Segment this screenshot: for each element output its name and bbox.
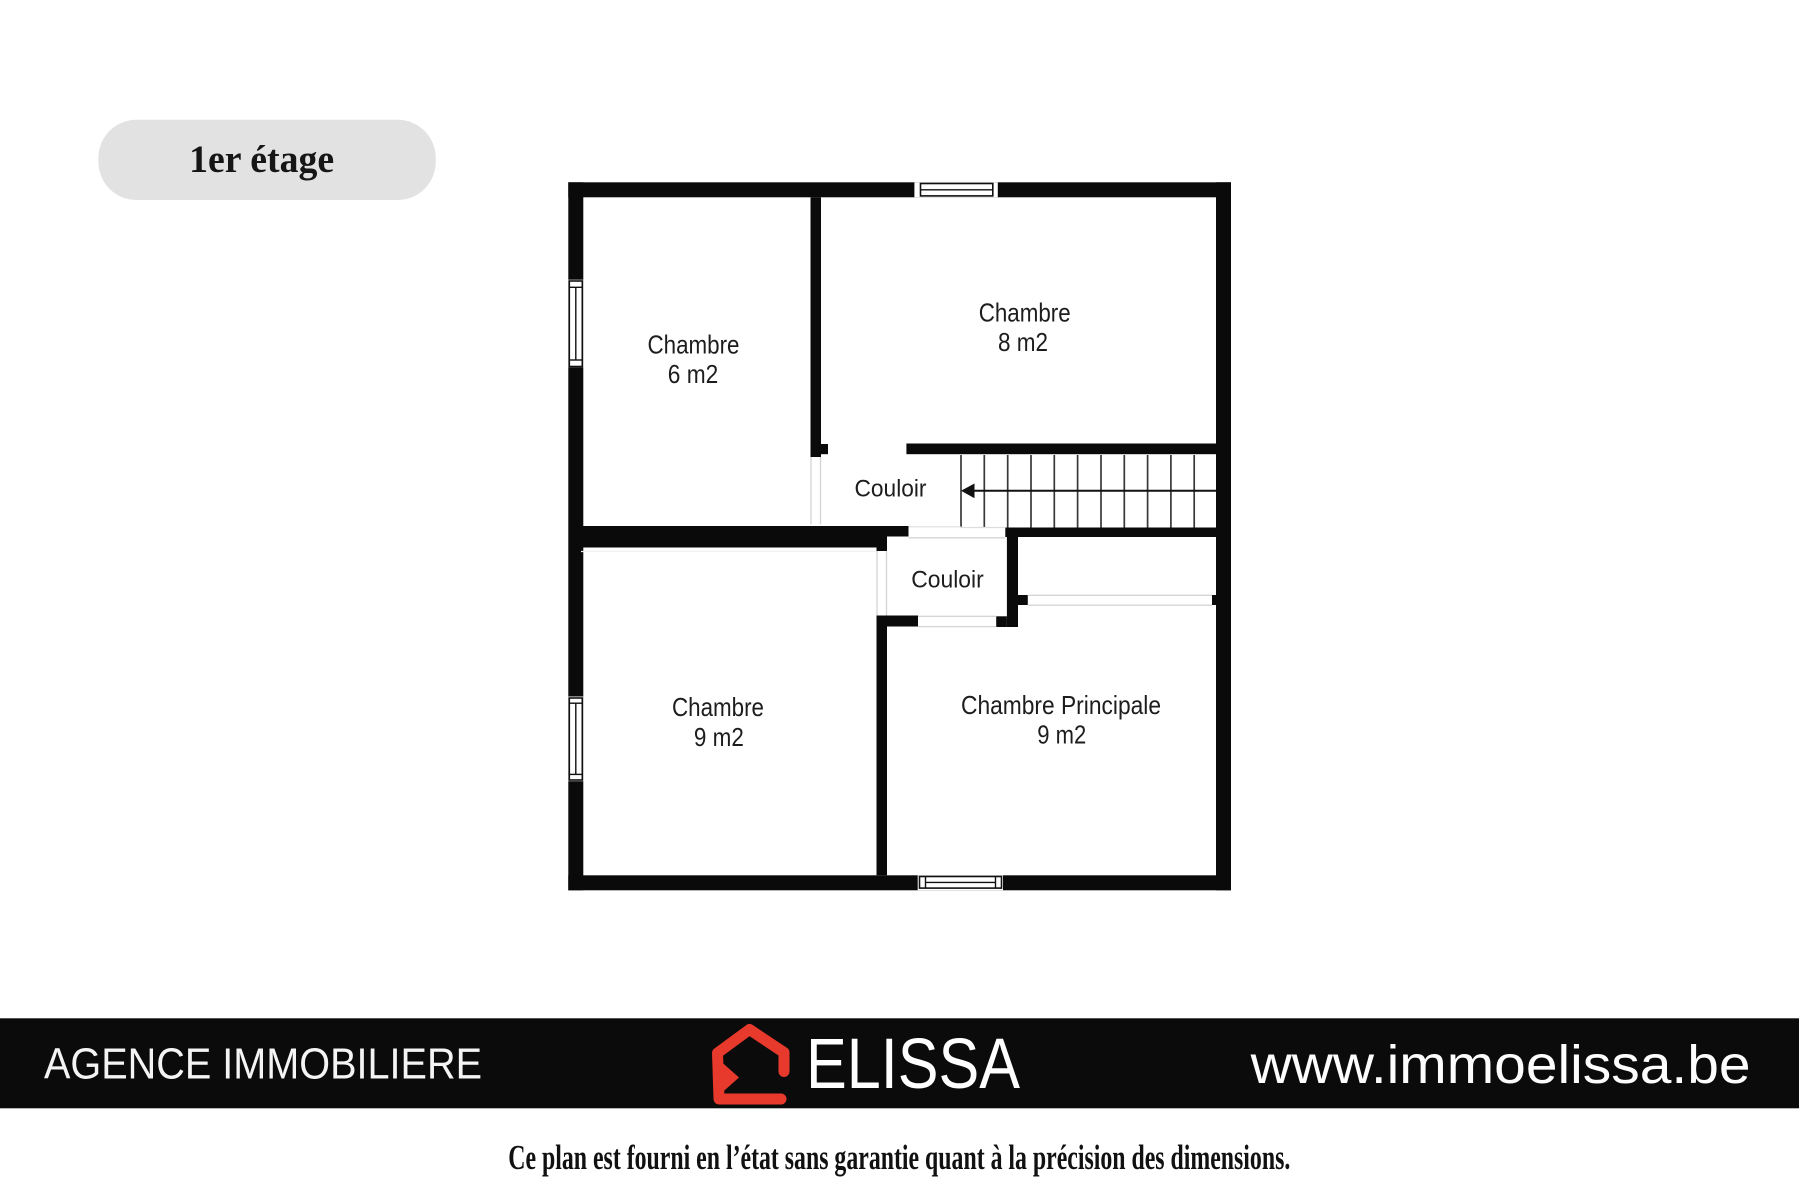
svg-text:Ce plan est fourni en l’état s: Ce plan est fourni en l’état sans garant… [508,1139,1290,1177]
svg-text:Chambre Principale: Chambre Principale [961,690,1161,720]
svg-text:1er étage: 1er étage [189,138,334,181]
svg-text:Chambre: Chambre [672,692,764,722]
svg-text:AGENCE IMMOBILIERE: AGENCE IMMOBILIERE [44,1041,482,1089]
svg-text:Couloir: Couloir [911,567,984,594]
svg-text:Chambre: Chambre [648,329,740,359]
svg-text:9 m2: 9 m2 [694,722,744,752]
svg-text:9 m2: 9 m2 [1037,720,1086,750]
svg-text:6 m2: 6 m2 [668,359,719,389]
svg-text:ELISSA: ELISSA [806,1025,1021,1104]
svg-text:www.immoelissa.be: www.immoelissa.be [1250,1035,1751,1095]
svg-text:8 m2: 8 m2 [998,327,1048,357]
svg-text:Chambre: Chambre [979,298,1071,328]
svg-text:Couloir: Couloir [855,475,927,502]
